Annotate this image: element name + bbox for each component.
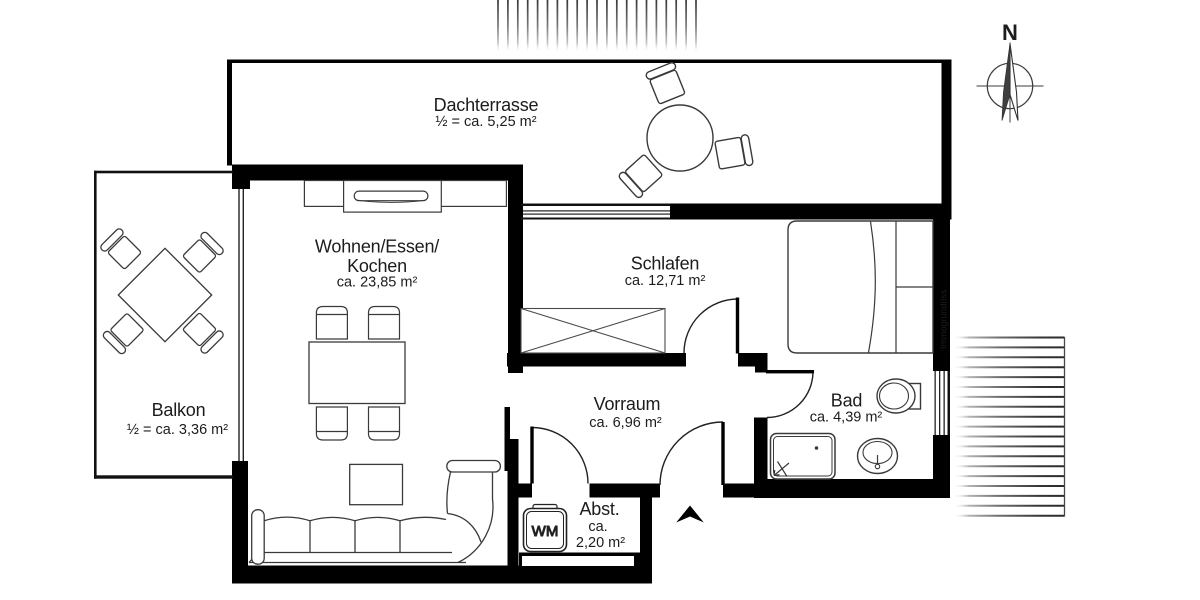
svg-text:ca. 6,96 m²: ca. 6,96 m² <box>589 415 662 431</box>
svg-text:Abst.: Abst. <box>579 499 619 519</box>
svg-text:Vorraum: Vorraum <box>594 394 661 414</box>
svg-text:2,20 m²: 2,20 m² <box>576 535 625 551</box>
svg-text:ca. 4,39 m²: ca. 4,39 m² <box>810 410 883 426</box>
svg-text:Dachterrasse: Dachterrasse <box>434 95 539 115</box>
svg-text:Kochen: Kochen <box>347 256 407 276</box>
svg-text:ca. 23,85 m²: ca. 23,85 m² <box>337 275 418 291</box>
svg-text:Balkon: Balkon <box>152 400 206 420</box>
svg-text:½ = ca. 5,25 m²: ½ = ca. 5,25 m² <box>435 114 536 130</box>
svg-text:ca.: ca. <box>588 519 607 535</box>
svg-text:WM: WM <box>532 523 559 540</box>
svg-text:Immogrundriss: Immogrundriss <box>939 289 949 349</box>
svg-text:½ = ca. 3,36 m²: ½ = ca. 3,36 m² <box>127 422 228 438</box>
svg-text:Wohnen/Essen/: Wohnen/Essen/ <box>315 237 439 257</box>
svg-text:ca. 12,71 m²: ca. 12,71 m² <box>625 273 706 289</box>
svg-text:Bad: Bad <box>831 391 862 411</box>
svg-text:N: N <box>1002 20 1018 45</box>
svg-text:Schlafen: Schlafen <box>631 254 699 274</box>
